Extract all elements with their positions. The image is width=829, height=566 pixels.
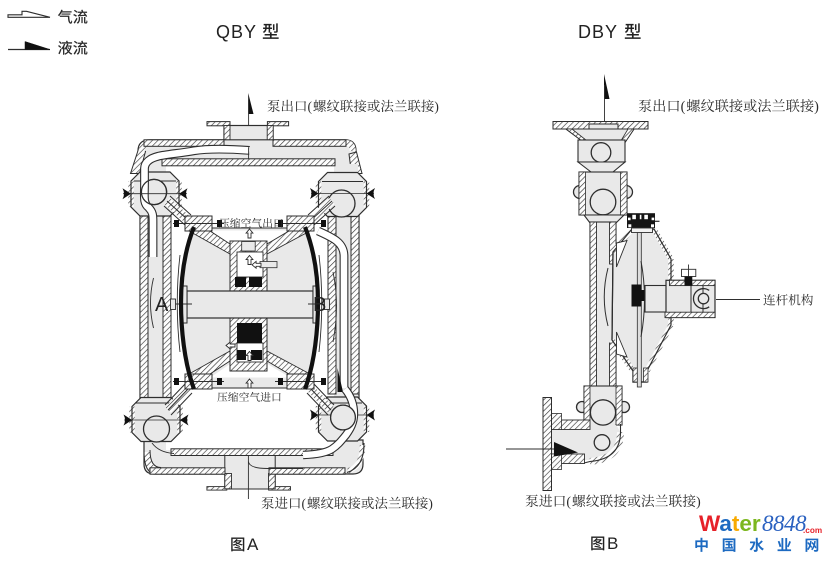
svg-text:Water: Water — [699, 511, 761, 536]
svg-text:B: B — [313, 294, 326, 316]
svg-text:): ) — [434, 99, 439, 114]
svg-text:): ) — [814, 99, 819, 115]
svg-text:QBY: QBY — [216, 22, 257, 42]
svg-text:A: A — [247, 535, 259, 554]
svg-text:(: ( — [681, 99, 686, 115]
svg-text:.com: .com — [803, 526, 822, 535]
svg-text:8848: 8848 — [762, 511, 807, 536]
svg-text:B: B — [607, 534, 618, 553]
svg-text:DBY: DBY — [578, 22, 618, 42]
svg-text:A: A — [155, 294, 169, 316]
svg-text:(: ( — [308, 99, 313, 114]
svg-text:): ) — [696, 494, 701, 510]
svg-text:(: ( — [302, 496, 307, 511]
svg-text:(: ( — [566, 494, 571, 510]
svg-text:): ) — [428, 496, 433, 511]
